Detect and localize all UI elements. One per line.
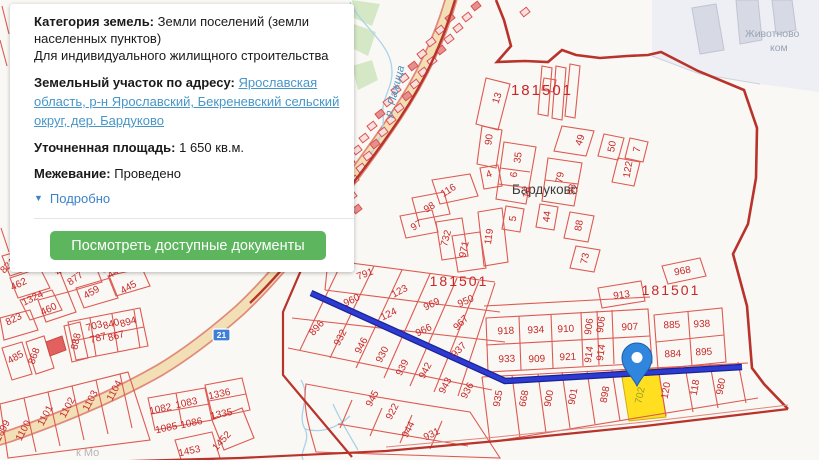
pin-hole (632, 352, 643, 363)
cadastral-map-page: Бардуково (0, 0, 819, 460)
address-row: Земельный участок по адресу: Ярославская… (34, 73, 342, 130)
parcel-number: 90 (483, 133, 496, 146)
area-label: Уточненная площадь: (34, 140, 175, 155)
parcel-number: 119 (483, 228, 496, 246)
parcel-number: 895 (695, 347, 713, 359)
survey-value: Проведено (114, 166, 181, 181)
parcel-number: 933 (498, 354, 516, 366)
quarter-number-label: 181501 (511, 82, 573, 99)
area-row: Уточненная площадь: 1 650 кв.м. (34, 139, 342, 156)
survey-row: Межевание: Проведено (34, 165, 342, 182)
quarter-number-label: 181501 (430, 273, 489, 289)
address-label: Земельный участок по адресу: (34, 75, 235, 90)
category-label: Категория земель: (34, 14, 154, 29)
parcel-number: 938 (693, 319, 711, 331)
parcel-number: 35 (512, 151, 525, 164)
farm-label-line2: ком (770, 42, 788, 54)
quarter-number-label: 181501 (642, 282, 701, 298)
category-row: Категория земель: Земли поселений (земли… (34, 13, 342, 64)
farm-label-line1: Животново (745, 28, 800, 40)
parcel-number: 44 (541, 210, 554, 223)
details-label: Подробно (50, 191, 110, 206)
divider (34, 218, 354, 219)
parcel-number: 907 (621, 322, 639, 334)
area-value: 1 650 кв.м. (179, 140, 244, 155)
road-sign-21: 21 (213, 329, 230, 341)
parcel-number: 910 (557, 324, 575, 336)
view-documents-button[interactable]: Посмотреть доступные документы (50, 231, 326, 260)
survey-label: Межевание: (34, 166, 111, 181)
map-watermark: к Мо (76, 447, 99, 459)
parcel-number: 918 (497, 326, 515, 338)
details-toggle[interactable]: ▼ Подробно (34, 191, 342, 206)
parcel-number: 921 (559, 352, 577, 364)
chevron-down-icon: ▼ (34, 194, 43, 203)
parcel-number: 934 (527, 325, 545, 337)
parcel-info-panel: Категория земель: Земли поселений (земли… (10, 4, 354, 272)
parcel-number: 909 (528, 354, 546, 366)
parcel-number: 885 (663, 320, 681, 332)
parcel-number: 884 (664, 349, 682, 361)
category-line2: Для индивидуального жилищного строительс… (34, 48, 329, 63)
svg-text:21: 21 (217, 330, 227, 340)
